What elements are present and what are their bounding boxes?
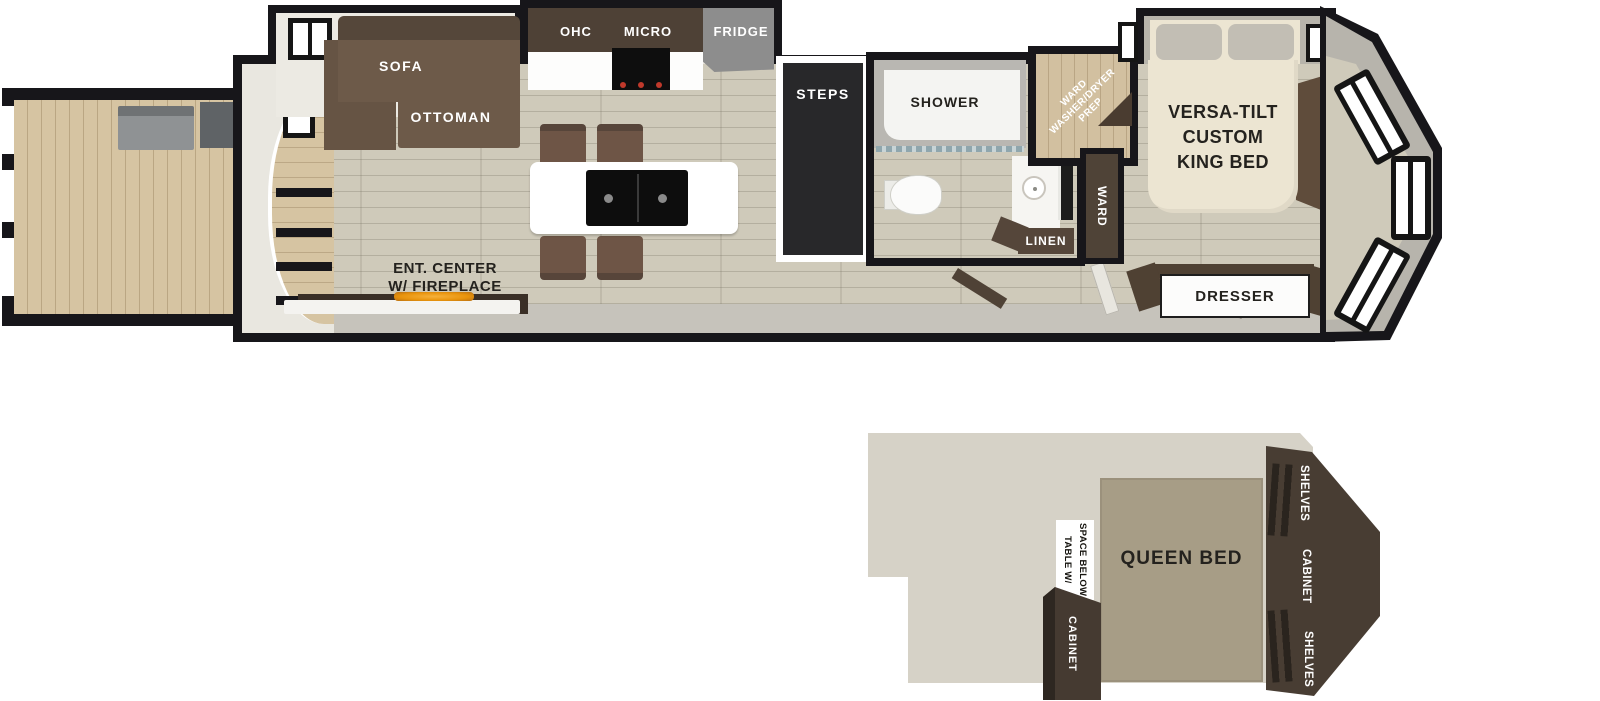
sofa-label: SOFA: [341, 58, 461, 74]
deck-railing: [2, 236, 14, 298]
fridge: [703, 8, 774, 72]
loft-table: TABLE W/SPACE BELOW: [1056, 520, 1094, 600]
king-bed-label-line1: VERSA-TILT: [1148, 100, 1298, 125]
loft-cabinet-side: [1043, 587, 1055, 700]
queen-bed: [1100, 478, 1263, 682]
cooktop: [612, 48, 670, 90]
queen-bed-label: QUEEN BED: [1100, 548, 1263, 570]
king-bed-label-line3: KING BED: [1148, 150, 1298, 175]
fireplace-icon: [394, 292, 474, 301]
bath-door-slab: [1058, 162, 1073, 220]
shelves-top-label: SHELVES: [1294, 458, 1310, 528]
ottoman-label: OTTOMAN: [381, 109, 521, 125]
deck-railing: [2, 168, 14, 224]
loft-table-label-line2: SPACE BELOW: [1075, 523, 1090, 596]
loft-table-label-line1: TABLE W/: [1062, 536, 1073, 584]
shower-glass: [876, 146, 1024, 152]
floorplan: SOFA OTTOMAN OHC MICRO FRIDGE ENT. CENTE…: [0, 0, 1600, 701]
ent-center-label: ENT. CENTER W/ FIREPLACE: [355, 260, 535, 296]
fridge-label: FRIDGE: [706, 24, 776, 39]
window-icon: [1118, 22, 1138, 62]
linen-label: LINEN: [1026, 234, 1067, 248]
ohc-label: OHC: [541, 24, 611, 39]
king-bed-label: VERSA-TILT CUSTOM KING BED: [1148, 100, 1298, 175]
sofa-back: [338, 16, 520, 42]
double-sink: [586, 170, 688, 226]
linen-cabinet: LINEN: [1018, 228, 1074, 254]
dresser-label: DRESSER: [1195, 288, 1275, 305]
ent-center-label-line1: ENT. CENTER: [355, 260, 535, 278]
stair-tread: [276, 262, 332, 271]
ent-center-counter: [284, 300, 520, 314]
shelves-bottom-label: SHELVES: [1298, 622, 1314, 696]
deck-bench: [200, 102, 236, 148]
loft-table-label: TABLE W/SPACE BELOW: [1060, 523, 1090, 596]
wardrobe: WARD: [1080, 148, 1124, 264]
window-icon: [1391, 156, 1431, 240]
stair-tread: [276, 188, 332, 197]
micro-label: MICRO: [608, 24, 688, 39]
deck-railing: [2, 104, 14, 156]
toilet: [890, 175, 942, 215]
king-bed-label-line2: CUSTOM: [1148, 125, 1298, 150]
chair: [540, 236, 586, 280]
shower-label: SHOWER: [885, 94, 1005, 110]
chair: [597, 236, 643, 280]
cabinet-side-label: CABINET: [1296, 540, 1312, 612]
front-cap: [1280, 0, 1450, 350]
wardrobe-label: WARD: [1095, 186, 1109, 227]
stair-tread: [276, 228, 332, 237]
sink-basin: [1022, 176, 1046, 200]
pillow: [1156, 24, 1222, 60]
steps-label: STEPS: [783, 86, 863, 102]
loft-cabinet-label: CABINET: [1066, 616, 1078, 672]
deck-bench: [118, 106, 194, 150]
